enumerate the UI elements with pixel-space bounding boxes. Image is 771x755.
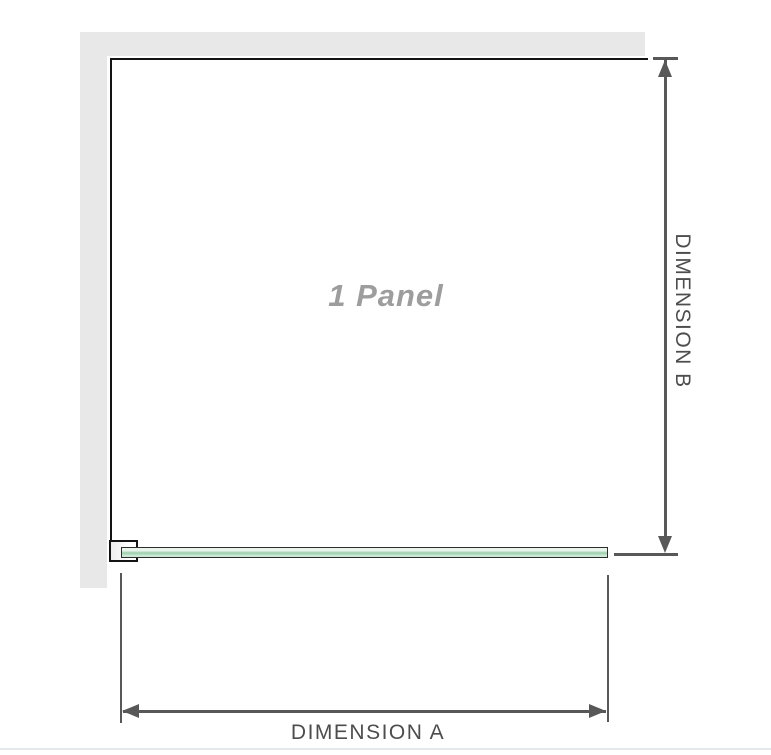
dimension-a-arrow-left-icon (122, 704, 139, 718)
dimension-a-right-extension-line (607, 575, 610, 722)
panel-left-edge-line (110, 58, 112, 540)
dimension-b-arrow-down-icon (658, 536, 672, 553)
dimension-a-line (123, 710, 606, 713)
page-divider-line (0, 748, 771, 750)
dimension-b-label: DIMENSION B (670, 233, 694, 388)
glass-panel-bar (121, 547, 608, 558)
dimension-a-left-extension-line (120, 573, 123, 723)
dimension-b-line (664, 60, 667, 536)
panel-count-label: 1 Panel (328, 278, 444, 314)
panel-top-edge-line (110, 58, 648, 60)
wall-left-strip (80, 32, 107, 588)
dimension-b-arrow-up-icon (658, 60, 672, 77)
wall-top-strip (80, 32, 645, 56)
dimension-a-arrow-right-icon (589, 704, 606, 718)
dimension-a-label: DIMENSION A (291, 721, 445, 745)
shower-panel-diagram: 1 Panel DIMENSION B DIMENSION A (0, 0, 771, 755)
